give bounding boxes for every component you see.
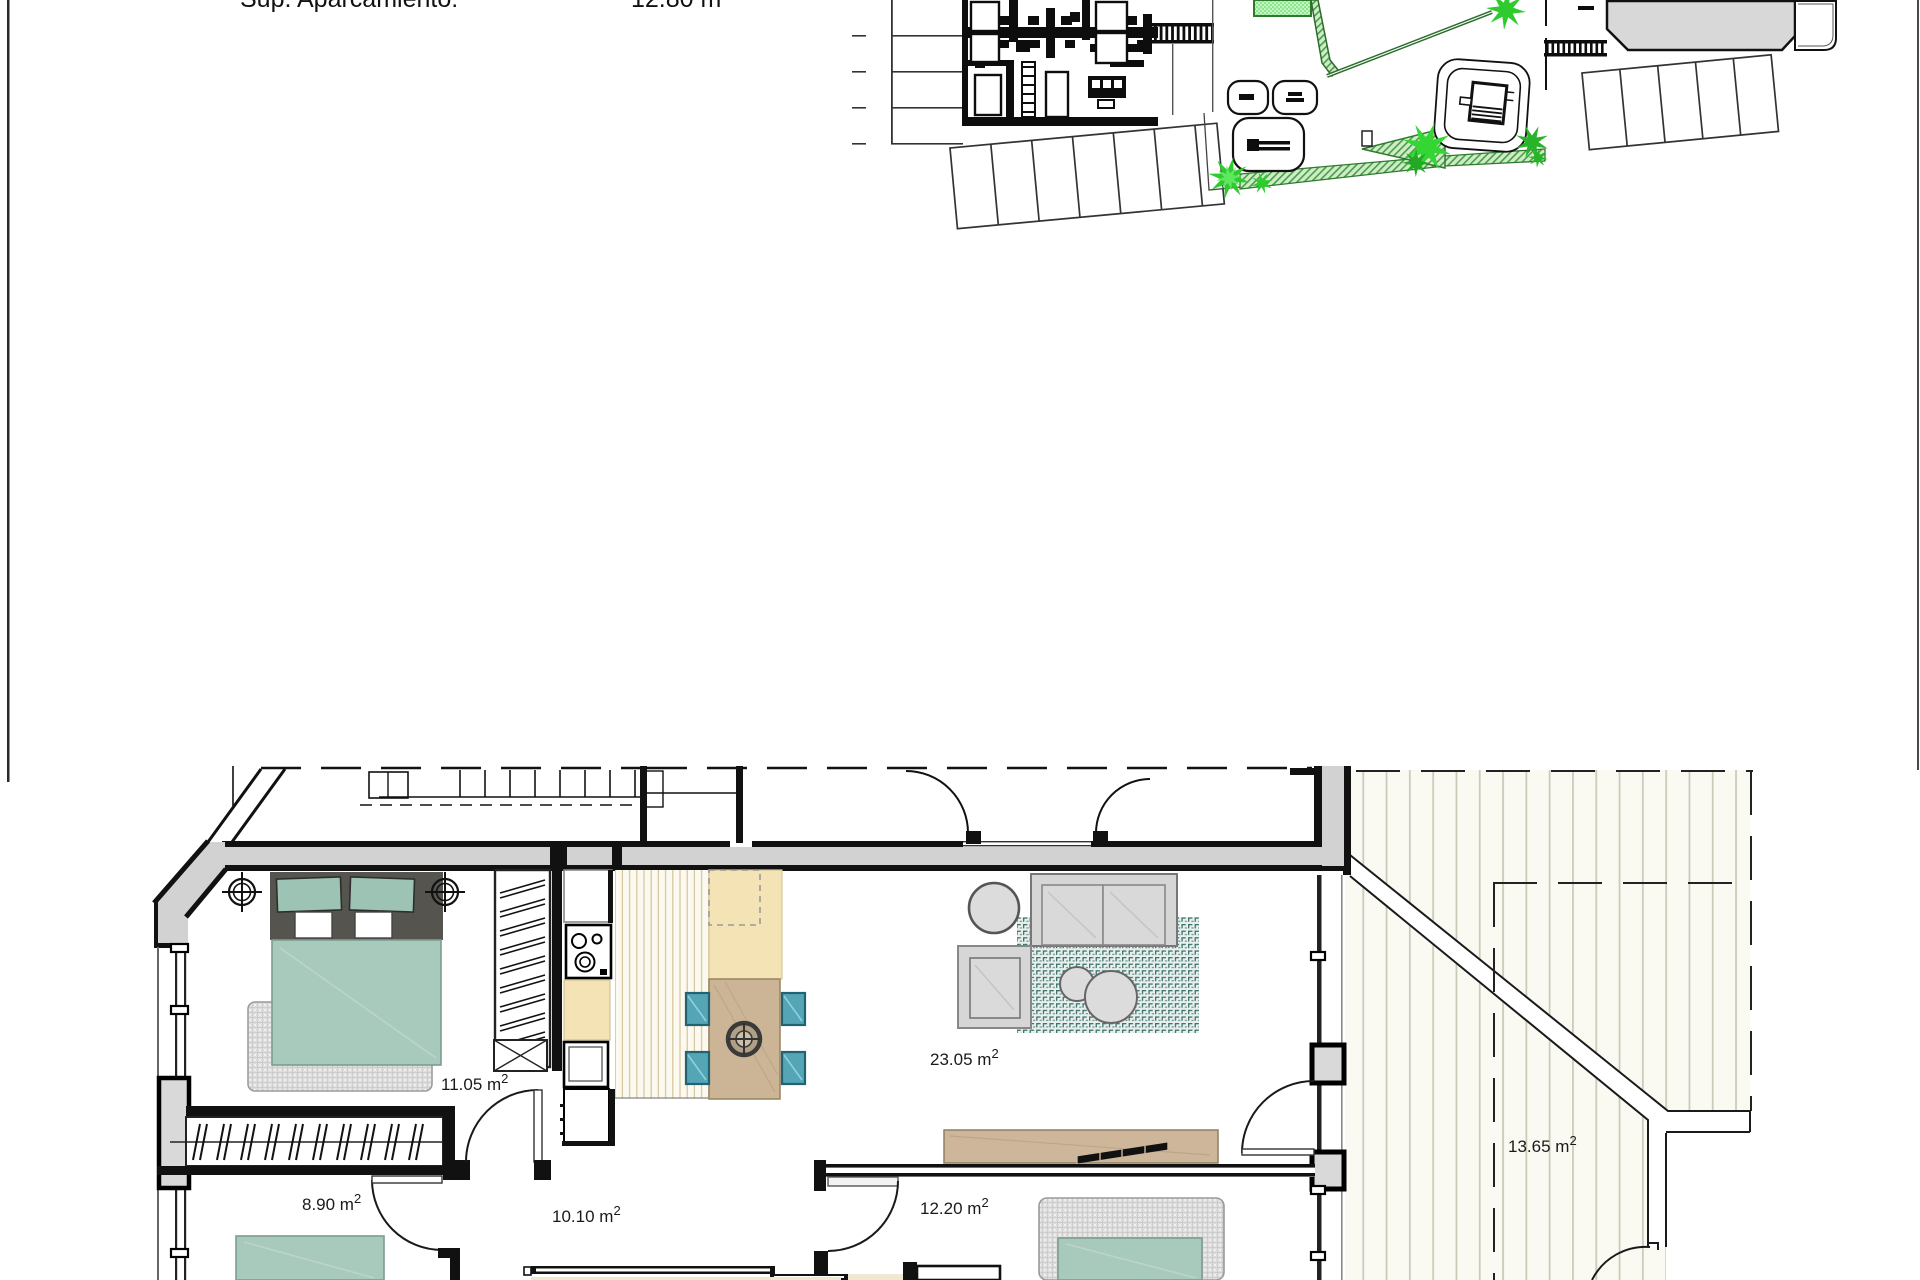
svg-text:8.90 m2: 8.90 m2	[302, 1191, 361, 1214]
svg-text:23.05 m2: 23.05 m2	[930, 1046, 999, 1069]
svg-text:13.65 m2: 13.65 m2	[1508, 1133, 1577, 1156]
svg-text:12.20 m2: 12.20 m2	[920, 1195, 989, 1218]
svg-text:12.80 m2: 12.80 m2	[631, 0, 732, 13]
svg-text:Sup. Aparcamiento:: Sup. Aparcamiento:	[240, 0, 458, 13]
svg-text:11.05 m2: 11.05 m2	[441, 1071, 508, 1094]
svg-text:10.10 m2: 10.10 m2	[552, 1203, 621, 1226]
